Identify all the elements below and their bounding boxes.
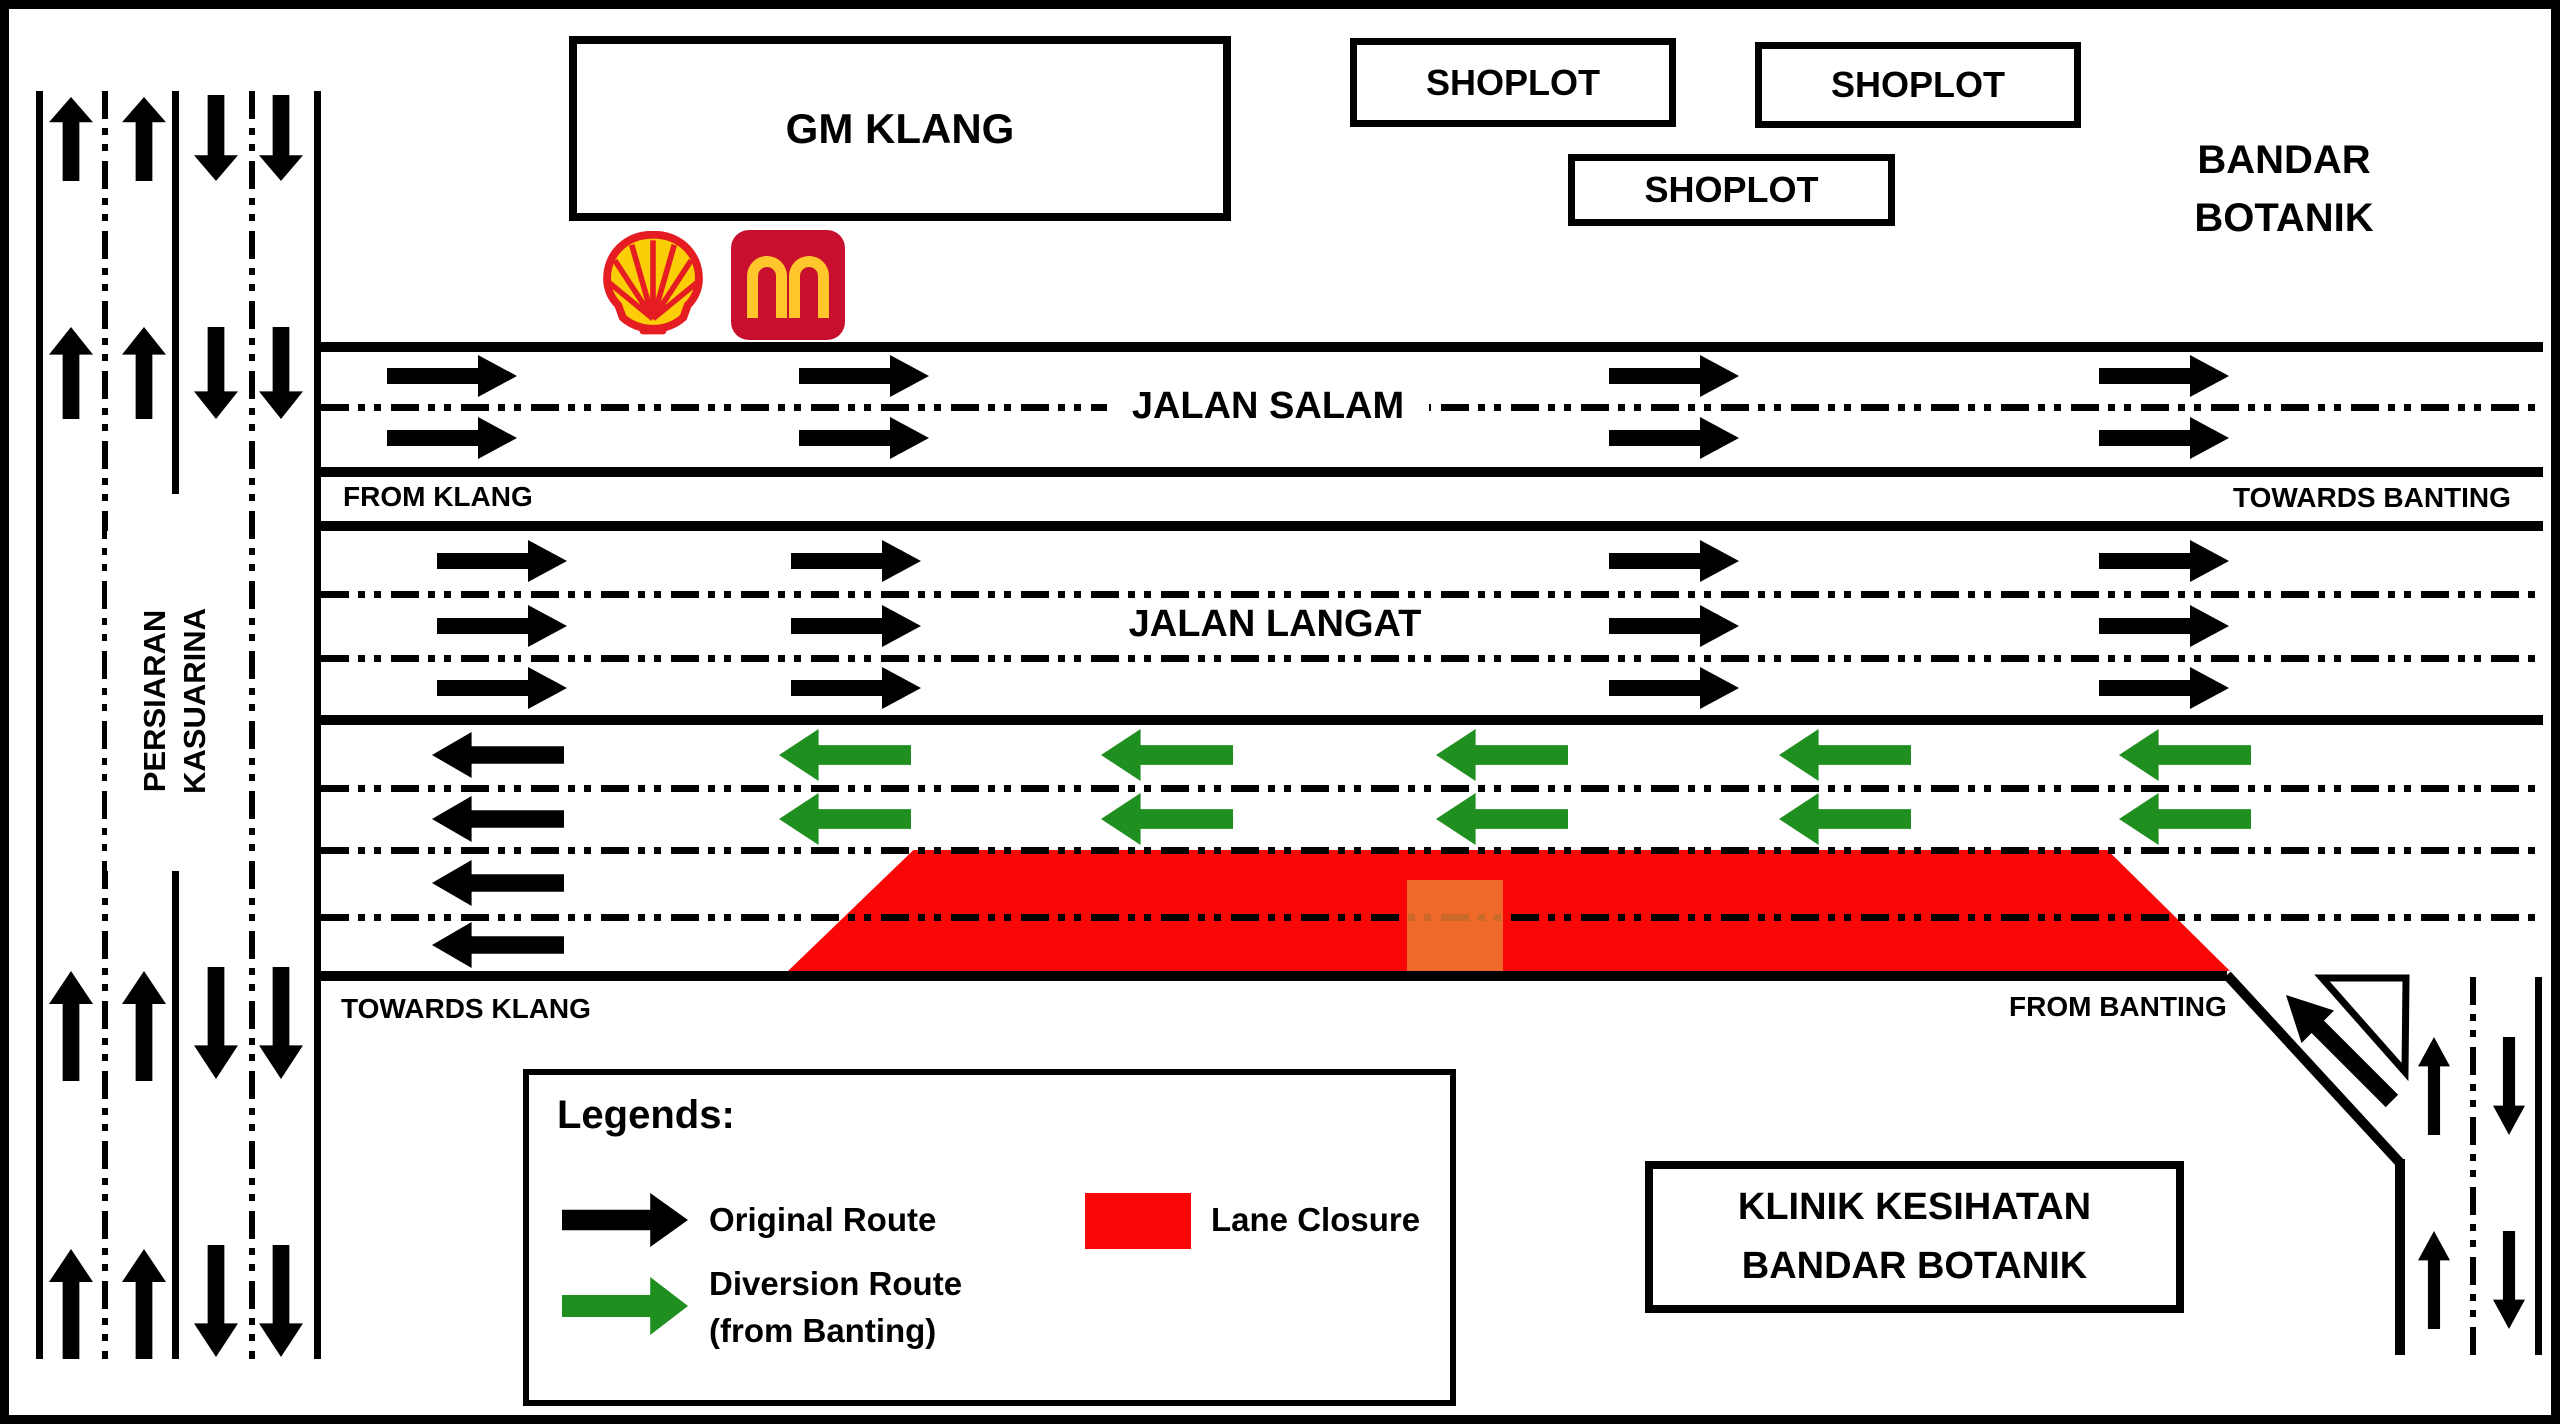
shoplot-building-1: SHOPLOT: [1350, 38, 1676, 127]
right-arrow-icon: [791, 667, 921, 709]
right-arrow-icon: [791, 540, 921, 582]
carriageway-center-line: [321, 715, 2543, 725]
down-arrow-icon: [259, 327, 303, 419]
right-arrow-icon: [2099, 540, 2229, 582]
jalan-salam-lane-divider: [321, 404, 2543, 411]
westbound-lane-divider: [321, 847, 2543, 854]
left-road-lane-divider: [249, 91, 255, 1359]
right-arrow-icon: [1609, 667, 1739, 709]
up-arrow-icon: [49, 1249, 93, 1359]
right-arrow-icon: [2099, 355, 2229, 397]
golden-arch-right: [789, 256, 829, 318]
diversion-left-arrow-icon: [1101, 793, 1233, 845]
towards-banting-label: TOWARDS BANTING: [2233, 482, 2511, 514]
diversion-left-arrow-icon: [2119, 729, 2251, 781]
legend-original-route-label: Original Route: [709, 1201, 936, 1239]
lane-closure-zone: [788, 850, 2230, 971]
right-arrow-icon: [2099, 605, 2229, 647]
down-arrow-icon: [259, 1245, 303, 1357]
mcdonalds-logo-icon: [731, 230, 845, 340]
diversion-left-arrow-icon: [1779, 793, 1911, 845]
diversion-left-arrow-icon: [1436, 729, 1568, 781]
right-arrow-icon: [1609, 540, 1739, 582]
golden-arch-left: [747, 256, 787, 318]
jalan-salam-label: JALAN SALAM: [1107, 381, 1429, 431]
shell-logo-icon: [597, 231, 709, 337]
jalan-salam-text: JALAN SALAM: [1132, 385, 1404, 428]
right-arrow-icon: [437, 667, 567, 709]
diversion-left-arrow-icon: [2119, 793, 2251, 845]
diversion-route-line2: (from Banting): [709, 1308, 962, 1355]
jalan-langat-text: JALAN LANGAT: [1129, 603, 1422, 646]
gm-klang-text: GM KLANG: [786, 105, 1015, 153]
jalan-langat-top-edge: [321, 521, 2543, 531]
down-arrow-icon: [2493, 1037, 2525, 1135]
up-arrow-icon: [49, 971, 93, 1081]
klinik-line2: BANDAR BOTANIK: [1742, 1237, 2088, 1296]
jalan-langat-lane-divider: [321, 655, 2543, 662]
up-arrow-icon: [49, 327, 93, 419]
diversion-left-arrow-icon: [1436, 793, 1568, 845]
diversion-left-arrow-icon: [779, 793, 911, 845]
left-arrow-icon: [432, 860, 564, 906]
westbound-lane-divider: [321, 785, 2543, 792]
right-arrow-icon: [387, 417, 517, 459]
left-road-edge-line: [36, 91, 43, 1359]
shoplot-building-2: SHOPLOT: [1568, 154, 1895, 226]
diversion-route-line1: Diversion Route: [709, 1261, 962, 1308]
up-arrow-icon: [122, 327, 166, 419]
right-arrow-icon: [1609, 355, 1739, 397]
slip-road-up-left-arrow-icon: [2270, 979, 2409, 1118]
down-arrow-icon: [194, 95, 238, 181]
right-arrow-icon: [437, 605, 567, 647]
persiaran-line2: KASUARINA: [175, 608, 215, 794]
right-arrow-icon: [799, 355, 929, 397]
down-arrow-icon: [259, 95, 303, 181]
klinik-line1: KLINIK KESIHATAN: [1738, 1178, 2091, 1237]
towards-klang-label: TOWARDS KLANG: [341, 993, 591, 1025]
diversion-left-arrow-icon: [1779, 729, 1911, 781]
down-arrow-icon: [194, 967, 238, 1079]
right-arrow-icon: [437, 540, 567, 582]
down-arrow-icon: [259, 967, 303, 1079]
left-road-center-line-upper: [172, 91, 179, 494]
left-arrow-icon: [432, 732, 564, 778]
up-arrow-icon: [49, 97, 93, 181]
klinik-kesihatan-building: KLINIK KESIHATAN BANDAR BOTANIK: [1645, 1161, 2184, 1313]
legend-lane-closure-label: Lane Closure: [1211, 1201, 1420, 1239]
right-arrow-icon: [387, 355, 517, 397]
left-road-center-line-lower: [172, 871, 179, 1359]
diversion-left-arrow-icon: [779, 729, 911, 781]
shoplot-building-3: SHOPLOT: [1755, 42, 2081, 128]
up-arrow-icon: [122, 1249, 166, 1359]
left-arrow-icon: [432, 796, 564, 842]
shoplot-text: SHOPLOT: [1426, 62, 1600, 104]
right-road-lane-divider: [2470, 977, 2476, 1355]
diversion-left-arrow-icon: [1101, 729, 1233, 781]
slip-road-island-triangle: [2322, 978, 2406, 1072]
from-banting-label: FROM BANTING: [2009, 991, 2227, 1023]
shoplot-text: SHOPLOT: [1831, 64, 2005, 106]
down-arrow-icon: [194, 327, 238, 419]
jalan-salam-bottom-edge: [321, 467, 2543, 477]
up-arrow-icon: [122, 971, 166, 1081]
bandar-botanik-area-label: BANDAR BOTANIK: [2159, 131, 2409, 247]
persiaran-line1: PERSIARAN: [135, 610, 175, 793]
up-arrow-icon: [2418, 1037, 2450, 1135]
gm-klang-building: GM KLANG: [569, 36, 1231, 221]
jalan-langat-label: JALAN LANGAT: [1109, 599, 1441, 649]
traffic-diversion-diagram: PERSIARAN KASUARINA: [0, 0, 2560, 1424]
right-arrow-icon: [2099, 417, 2229, 459]
botanik-text: BOTANIK: [2159, 189, 2409, 247]
left-road-edge-line: [314, 91, 321, 1359]
left-arrow-icon: [432, 922, 564, 968]
right-arrow-icon: [2099, 667, 2229, 709]
bandar-text: BANDAR: [2159, 131, 2409, 189]
up-arrow-icon: [122, 97, 166, 181]
persiaran-kasuarina-label: PERSIARAN KASUARINA: [107, 531, 243, 871]
jalan-langat-lane-divider: [321, 591, 2543, 598]
legend-diversion-route-label: Diversion Route (from Banting): [709, 1261, 962, 1355]
legend-lane-closure-swatch: [1085, 1193, 1191, 1249]
down-arrow-icon: [194, 1245, 238, 1357]
westbound-bottom-edge: [321, 971, 2227, 981]
right-arrow-icon: [791, 605, 921, 647]
jalan-salam-top-edge: [321, 342, 2543, 352]
down-arrow-icon: [2493, 1231, 2525, 1329]
right-arrow-icon: [799, 417, 929, 459]
work-area-patch: [1407, 880, 1503, 971]
right-road-edge-line: [2535, 977, 2542, 1355]
up-arrow-icon: [2418, 1231, 2450, 1329]
from-klang-label: FROM KLANG: [343, 481, 533, 513]
legend-title: Legends:: [557, 1093, 735, 1138]
shoplot-text: SHOPLOT: [1644, 169, 1818, 211]
right-arrow-icon: [1609, 605, 1739, 647]
right-arrow-icon: [1609, 417, 1739, 459]
